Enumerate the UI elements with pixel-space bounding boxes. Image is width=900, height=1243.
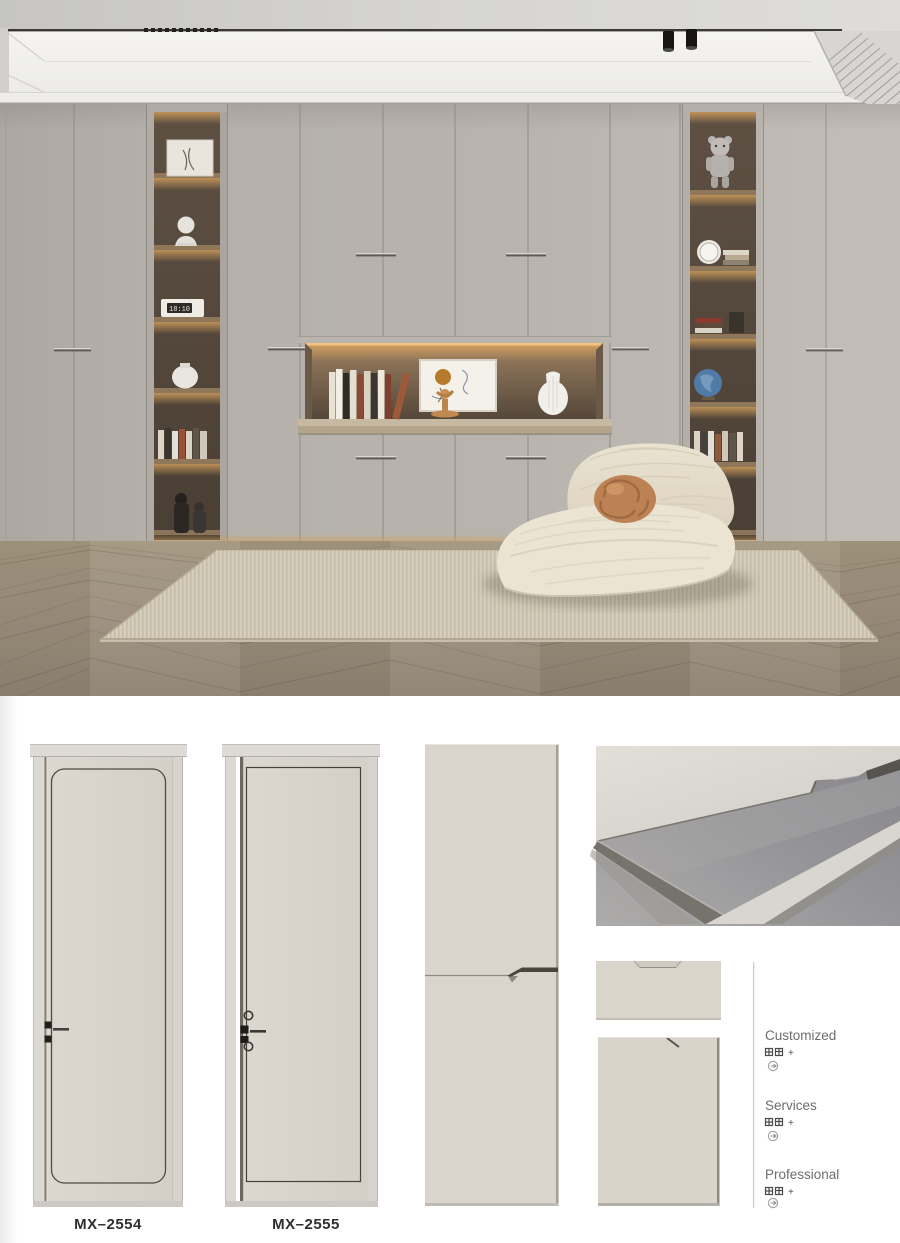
svg-text:+: + [788, 1187, 794, 1198]
svg-text:Professional: Professional [765, 1167, 839, 1182]
svg-text:MX–2555: MX–2555 [272, 1216, 340, 1233]
svg-text:+: + [788, 1048, 794, 1059]
svg-text:+: + [788, 1118, 794, 1129]
svg-text:18:10: 18:10 [169, 306, 190, 314]
svg-text:Services: Services [765, 1098, 817, 1113]
svg-text:MX–2554: MX–2554 [74, 1216, 142, 1233]
svg-text:Customized: Customized [765, 1028, 836, 1043]
